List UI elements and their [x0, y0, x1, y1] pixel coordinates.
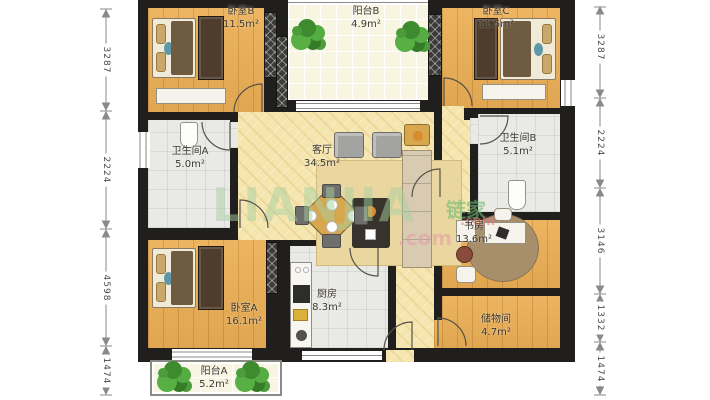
dimension-label: 1332 — [595, 302, 605, 335]
doorway-storage — [434, 320, 442, 348]
room-label-balcony-b: 阳台B 4.9m² — [351, 5, 381, 31]
room-name: 书房 — [464, 221, 484, 232]
desk-chair — [494, 208, 512, 221]
dimension-label: 2224 — [595, 127, 605, 160]
side-table — [404, 124, 430, 146]
room-label-study: 书房 13.6m² — [456, 220, 492, 246]
room-name: 阳台A — [201, 366, 228, 377]
room-area: 4.9m² — [351, 19, 381, 30]
room-name: 厨房 — [317, 289, 337, 300]
column — [266, 242, 278, 294]
watermark-brand: LIANJIA — [212, 178, 416, 232]
dresser — [156, 88, 226, 104]
doorway-entry — [386, 350, 414, 362]
seat — [456, 266, 476, 283]
room-label-bathroom-b: 卫生间B 5.1m² — [500, 132, 537, 158]
armchair — [372, 132, 402, 158]
room-area: 4.7m² — [481, 327, 511, 338]
bed — [152, 18, 196, 78]
room-area: 13.6m² — [456, 234, 492, 245]
room-area: 5.2m² — [199, 379, 229, 390]
room-area: 11.5m² — [223, 19, 259, 30]
dimension-label: 1474 — [595, 353, 605, 386]
room-label-storage: 储物间 4.7m² — [481, 313, 511, 339]
dimension-label: 3287 — [595, 31, 605, 64]
room-name: 客厅 — [312, 145, 332, 156]
room-area: 5.1m² — [503, 146, 533, 157]
doorway-bathroom-b — [470, 118, 478, 144]
room-area: 5.0m² — [175, 159, 205, 170]
plant-icon — [396, 28, 406, 38]
room-label-bedroom-a: 卧室A 16.1m² — [226, 302, 262, 328]
column — [276, 36, 288, 108]
watermark-brand-suffix: .com — [398, 226, 452, 250]
room-area: 16.1m² — [226, 316, 262, 327]
floor-plan: LIANJIA .com 链家 .com — [0, 0, 710, 400]
doorway-bedroom-c — [442, 106, 464, 120]
room-name: 阳台B — [353, 6, 380, 17]
dimension-label: 2224 — [101, 154, 111, 187]
round-stool — [456, 246, 473, 263]
dresser — [482, 84, 546, 100]
room-label-living: 客厅 34.5m² — [304, 144, 340, 170]
room-label-kitchen: 厨房 8.3m² — [312, 288, 342, 314]
bed — [152, 248, 196, 308]
room-label-balcony-a: 阳台A 5.2m² — [199, 365, 229, 391]
room-label-bedroom-c: 卧室C 11.5m² — [478, 5, 514, 31]
room-area: 11.5m² — [478, 19, 514, 30]
room-area: 8.3m² — [312, 302, 342, 313]
room-name: 卫生间B — [500, 133, 537, 144]
room-name: 储物间 — [481, 314, 511, 325]
plant-icon — [158, 368, 168, 378]
room-name: 卧室C — [483, 6, 510, 17]
room-name: 卫生间A — [172, 146, 209, 157]
plant-icon — [236, 368, 246, 378]
wardrobe — [198, 246, 224, 310]
room-name: 卧室A — [231, 303, 258, 314]
doorway-bathroom-a — [230, 122, 238, 148]
kitchen-counter — [290, 262, 312, 348]
dimension-label: 1474 — [101, 355, 111, 388]
dimension-label: 3287 — [101, 44, 111, 77]
dining-chair — [322, 234, 341, 248]
column — [428, 14, 442, 76]
room-label-bedroom-b: 卧室B 11.5m² — [223, 5, 259, 31]
dimension-label: 3146 — [595, 225, 605, 258]
toilet — [508, 180, 526, 210]
dimension-line — [594, 7, 606, 395]
plant-icon — [292, 26, 302, 36]
room-label-bathroom-a: 卫生间A 5.0m² — [172, 145, 209, 171]
room-name: 卧室B — [228, 6, 255, 17]
wardrobe — [198, 16, 224, 80]
room-area: 34.5m² — [304, 158, 340, 169]
dimension-label: 4598 — [101, 272, 111, 305]
